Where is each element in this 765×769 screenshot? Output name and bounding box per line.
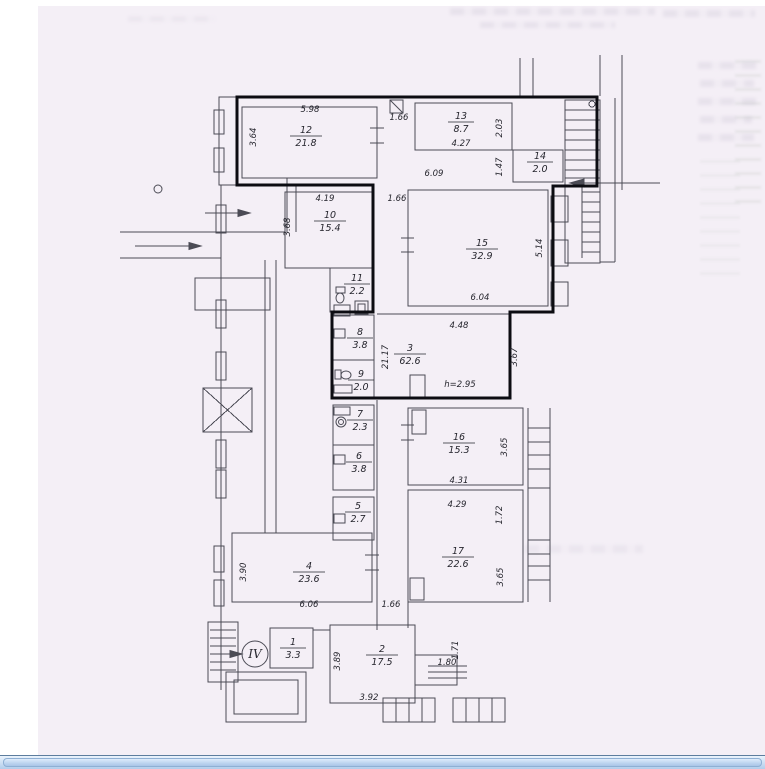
svg-text:11: 11 (351, 273, 363, 284)
svg-text:17: 17 (452, 546, 464, 557)
room-label: 83.8 (347, 327, 373, 351)
room-label: 1532.9 (466, 238, 498, 262)
dimension-label: 3.67 (510, 347, 520, 367)
plan-labels: 1221.8138.7142.01015.41532.9112.283.8362… (239, 105, 553, 703)
svg-text:3: 3 (407, 343, 413, 354)
dimension-label: h=2.95 (444, 380, 475, 390)
dimension-label: 3.65 (500, 438, 510, 457)
dimension-label: 4.48 (450, 321, 470, 331)
svg-text:2.7: 2.7 (350, 514, 365, 525)
room-label: 1221.8 (290, 125, 322, 149)
room-label: 362.6 (394, 343, 426, 367)
door-leaf (412, 410, 426, 434)
room-label: 52.7 (345, 501, 371, 525)
sink-icon (334, 455, 345, 464)
sink-icon (334, 407, 350, 415)
svg-text:17.5: 17.5 (371, 657, 392, 668)
basin-icon (336, 417, 346, 427)
svg-text:15: 15 (476, 238, 488, 249)
svg-text:2.3: 2.3 (352, 422, 367, 433)
svg-text:15.3: 15.3 (448, 445, 469, 456)
svg-text:3.8: 3.8 (351, 464, 366, 475)
svg-text:62.6: 62.6 (399, 356, 420, 367)
dimension-label: 3.68 (283, 217, 293, 237)
svg-text:22.6: 22.6 (447, 559, 468, 570)
svg-text:14: 14 (534, 151, 546, 162)
room-label: 13.3 (280, 637, 306, 661)
room-label: 1615.3 (443, 432, 475, 456)
svg-text:1: 1 (290, 637, 296, 648)
dimension-label: 5.98 (301, 105, 321, 115)
room-label: 72.3 (347, 409, 373, 433)
svg-text:10: 10 (324, 210, 336, 221)
svg-text:12: 12 (300, 125, 312, 136)
dimension-label: 1.71 (451, 641, 461, 660)
svg-text:23.6: 23.6 (298, 574, 319, 585)
dimension-label: 3.89 (333, 652, 343, 671)
wall-lines (120, 55, 622, 722)
door-leaf (410, 578, 424, 600)
room-label: 112.2 (344, 273, 370, 297)
svg-text:7: 7 (357, 409, 363, 420)
sink-icon (334, 329, 345, 338)
corridor-arrow-icon (238, 210, 250, 217)
dimension-label: 2.03 (495, 119, 505, 138)
stair-arrow-icon (230, 651, 242, 658)
sink-icon (334, 514, 345, 523)
dimension-label: 1.66 (382, 600, 402, 610)
room-label: 138.7 (448, 111, 474, 135)
stair-section-badge: IV (242, 641, 268, 667)
dimension-label: 1.66 (390, 113, 410, 123)
svg-text:15.4: 15.4 (319, 223, 340, 234)
svg-text:3.8: 3.8 (352, 340, 367, 351)
svg-text:2.0: 2.0 (532, 164, 547, 175)
dimension-label: 1.72 (495, 506, 505, 525)
horizontal-scrollbar-track[interactable] (0, 755, 765, 769)
svg-text:4: 4 (306, 561, 312, 572)
dimension-label: 4.19 (316, 194, 335, 204)
svg-text:2.2: 2.2 (349, 286, 364, 297)
corridor-arrow-icon (189, 243, 201, 250)
toilet-icon (336, 287, 345, 293)
svg-text:9: 9 (358, 369, 364, 380)
dimension-label: 3.64 (249, 128, 259, 147)
svg-text:6: 6 (356, 451, 362, 462)
toilet-icon (335, 370, 341, 379)
dimension-label: 6.09 (425, 169, 444, 179)
survey-mark (154, 185, 162, 193)
room-label: 142.0 (527, 151, 553, 175)
stair-section-label: IV (247, 647, 263, 661)
room-label: 217.5 (366, 644, 398, 668)
dimension-label: 6.06 (300, 600, 320, 610)
dimension-label: 6.04 (471, 293, 490, 303)
dimension-label: 3.90 (239, 563, 249, 582)
dimension-label: 21.17 (381, 344, 391, 369)
dimension-label: 1.47 (495, 157, 505, 177)
dimension-label: 1.66 (388, 194, 408, 204)
room-label: 1015.4 (314, 210, 346, 234)
dimension-label: 4.29 (448, 500, 467, 510)
dimension-label: 3.65 (496, 568, 506, 587)
dimension-label: 3.92 (360, 693, 379, 703)
dimension-label: 4.27 (452, 139, 472, 149)
svg-text:32.9: 32.9 (471, 251, 492, 262)
room-label: 1722.6 (442, 546, 474, 570)
svg-text:21.8: 21.8 (295, 138, 316, 149)
svg-text:13: 13 (455, 111, 467, 122)
svg-text:2: 2 (379, 644, 385, 655)
svg-text:2.0: 2.0 (353, 382, 368, 393)
room-label: 423.6 (293, 561, 325, 585)
svg-text:8.7: 8.7 (453, 124, 468, 135)
svg-text:5: 5 (355, 501, 361, 512)
dimension-label: 5.14 (535, 239, 545, 258)
svg-text:3.3: 3.3 (285, 650, 300, 661)
horizontal-scrollbar-thumb[interactable] (3, 758, 762, 767)
document-viewport: IV 1221.8138.7142.01015.41532.9112.283.8… (0, 0, 765, 769)
dimension-label: 4.31 (450, 476, 469, 486)
svg-text:16: 16 (453, 432, 465, 443)
svg-text:8: 8 (357, 327, 363, 338)
room-label: 63.8 (346, 451, 372, 475)
floor-plan-svg: IV 1221.8138.7142.01015.41532.9112.283.8… (0, 0, 765, 769)
